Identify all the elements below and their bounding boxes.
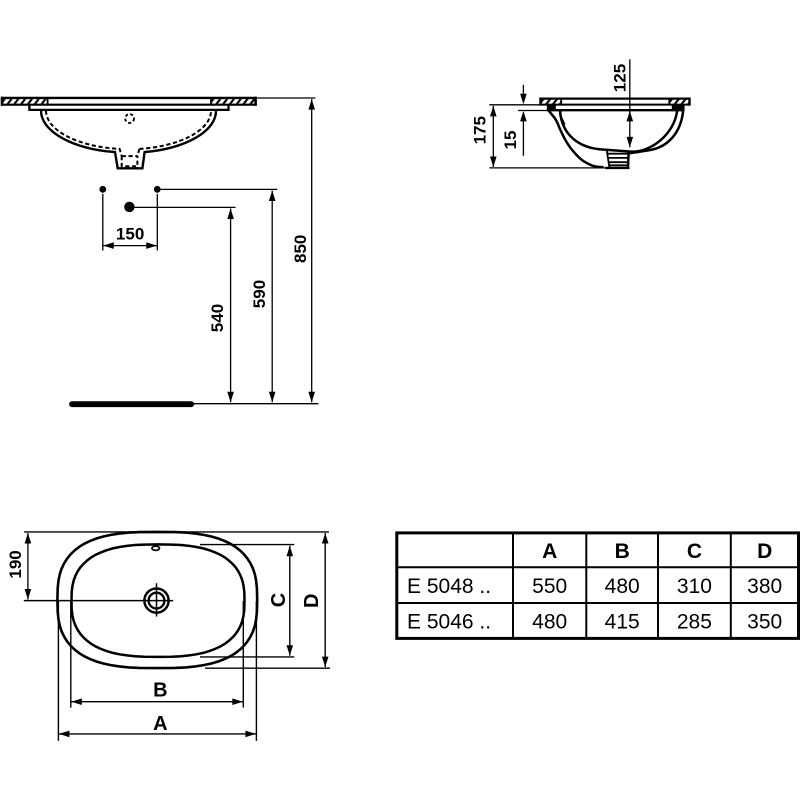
svg-text:B: B (615, 540, 630, 563)
svg-text:480: 480 (605, 575, 640, 598)
svg-text:350: 350 (747, 610, 782, 633)
svg-text:550: 550 (532, 575, 567, 598)
svg-text:150: 150 (116, 225, 144, 244)
svg-text:E 5048 ..: E 5048 .. (407, 575, 491, 598)
svg-text:285: 285 (677, 610, 712, 633)
svg-text:480: 480 (532, 610, 567, 633)
svg-text:C: C (268, 593, 290, 607)
svg-text:125: 125 (611, 64, 630, 92)
svg-text:15: 15 (501, 131, 520, 150)
svg-text:D: D (301, 594, 323, 608)
svg-text:540: 540 (208, 304, 227, 332)
svg-text:C: C (687, 540, 702, 563)
svg-text:415: 415 (605, 610, 640, 633)
svg-text:310: 310 (677, 575, 712, 598)
svg-text:380: 380 (747, 575, 782, 598)
svg-text:E 5046 ..: E 5046 .. (407, 610, 491, 633)
svg-text:D: D (757, 540, 772, 563)
svg-text:590: 590 (250, 280, 269, 308)
svg-text:175: 175 (471, 116, 490, 144)
svg-text:A: A (153, 713, 167, 735)
svg-text:B: B (153, 680, 167, 702)
svg-text:190: 190 (6, 550, 25, 578)
svg-text:A: A (542, 540, 557, 563)
svg-text:850: 850 (291, 235, 310, 263)
